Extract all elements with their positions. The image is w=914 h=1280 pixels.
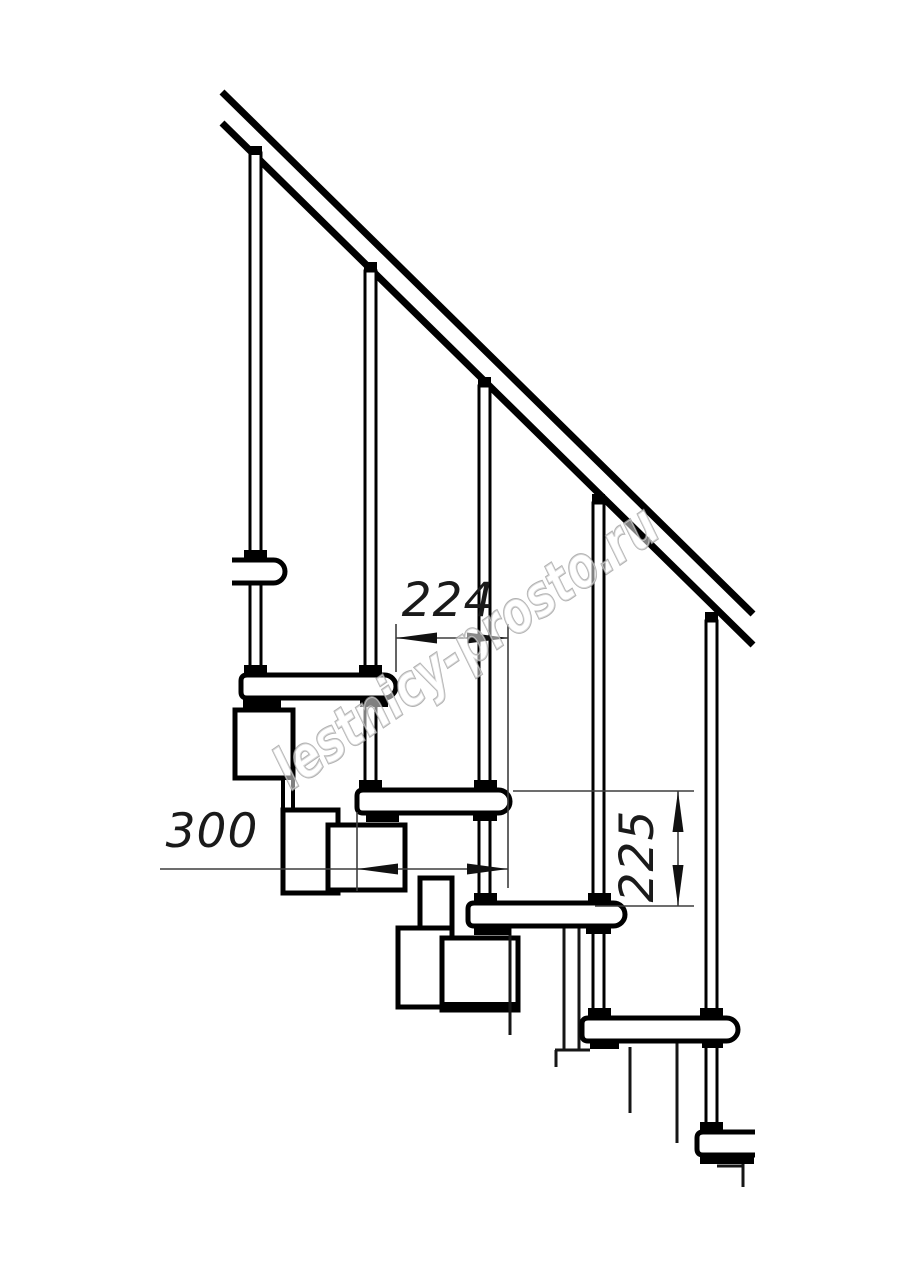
baluster-collar: [244, 550, 267, 560]
baluster-collar: [588, 893, 611, 903]
baluster-foot-collar: [244, 665, 267, 675]
arrowhead-up: [673, 791, 684, 832]
baluster-foot-collar: [474, 893, 497, 903]
tread-5: [582, 1018, 738, 1041]
mount-foot: [700, 1155, 754, 1164]
baluster-top-cap: [364, 262, 377, 271]
mount-foot: [473, 813, 497, 821]
module-link-2: [420, 878, 452, 928]
baluster-foot-collar: [588, 1008, 611, 1018]
dimension-label-step-rise: 225: [610, 810, 665, 903]
staircase-drawing-page: 224 300 225 lestnicy-prosto.ru: [0, 0, 914, 1280]
watermark-text: lestnicy-prosto.ru: [260, 490, 671, 802]
mount-foot: [366, 813, 399, 822]
mount-foot: [243, 698, 281, 708]
baluster-shaft: [706, 621, 717, 1132]
baluster-1: [249, 146, 262, 675]
baluster-foot-collar: [700, 1122, 723, 1132]
tread-6: [697, 1132, 755, 1155]
baluster-foot-collar: [359, 780, 382, 790]
baluster-top-cap: [478, 377, 491, 386]
module-box-receiver-2: [328, 825, 405, 890]
baluster-top-cap: [705, 612, 718, 621]
tread-3: [357, 790, 510, 813]
baluster-top-cap: [592, 494, 605, 503]
baluster-collar: [700, 1008, 723, 1018]
mount-foot: [474, 926, 511, 935]
arrowhead-down: [673, 865, 684, 906]
staircase-technical-drawing: 224 300 225 lestnicy-prosto.ru: [0, 0, 914, 1280]
mount-foot: [702, 1041, 723, 1048]
baluster-5: [705, 612, 718, 1132]
mount-foot: [590, 1041, 619, 1049]
module-base-plate: [444, 1002, 516, 1010]
baluster-top-cap: [249, 146, 262, 155]
module-box-receiver-3: [442, 938, 518, 1010]
baluster-shaft: [250, 153, 261, 675]
dimension-label-tread-depth: 300: [166, 804, 259, 859]
baluster-collar: [474, 780, 497, 790]
mount-foot: [586, 926, 611, 934]
tread-1: [232, 560, 285, 583]
